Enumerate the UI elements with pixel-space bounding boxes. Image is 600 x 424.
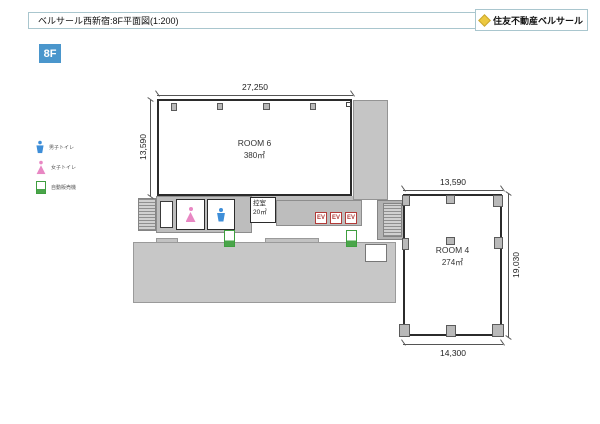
legend-item-male-toilet: 男子トイレ: [36, 140, 116, 154]
toilet-room-male: [207, 199, 235, 230]
elevator-1: EV: [315, 212, 327, 224]
elevator-label: EV: [332, 215, 340, 221]
dim-line: [403, 344, 503, 345]
legend: 男子トイレ 女子トイレ 自動販売機: [36, 140, 116, 200]
male-toilet-icon: [217, 208, 225, 222]
room4-dim-top: 13,590: [403, 177, 503, 187]
pillar: [171, 103, 177, 111]
room4-area: 274㎡: [405, 257, 500, 269]
brand-logo: 住友不動産ベルサール: [475, 9, 588, 31]
waiting-room-area: 20㎡: [253, 208, 275, 217]
pillar: [446, 237, 455, 245]
legend-label: 男子トイレ: [49, 144, 74, 151]
room4-name: ROOM 4: [405, 244, 500, 257]
elevator-label: EV: [317, 215, 325, 221]
dim-line: [157, 95, 353, 96]
dim-line: [150, 100, 151, 196]
wall-fixture: [346, 102, 351, 107]
pillar: [493, 195, 503, 207]
legend-item-vending: 自動販売機: [36, 180, 116, 194]
room6-name: ROOM 6: [159, 137, 350, 150]
stairs-right: [383, 203, 402, 237]
page-title: ベルサール西新宿:8F平面図(1:200): [38, 14, 179, 27]
legend-item-female-toilet: 女子トイレ: [36, 160, 116, 174]
pillar: [263, 103, 270, 110]
diamond-icon: [478, 14, 491, 27]
room6-area: 380㎡: [159, 150, 350, 162]
pillar: [310, 103, 316, 110]
pillar: [402, 238, 409, 250]
dim-line: [403, 190, 503, 191]
female-toilet-icon: [186, 207, 196, 222]
vending-machine-icon: [224, 230, 235, 247]
dim-line: [508, 194, 509, 337]
elevator-label: EV: [347, 215, 355, 221]
lower-area-room: [365, 244, 387, 262]
pillar: [399, 324, 410, 337]
female-toilet-icon: [37, 160, 46, 174]
pillar: [492, 324, 504, 337]
vending-machine-icon: [36, 181, 46, 194]
room4-dim-right: 19,030: [511, 245, 521, 285]
toilet-fixtures: [160, 201, 173, 228]
toilet-room-female: [176, 199, 205, 230]
legend-label: 女子トイレ: [51, 164, 76, 171]
pillar: [446, 325, 456, 337]
brand-name: 住友不動産ベルサール: [493, 14, 583, 27]
pillar: [217, 103, 223, 110]
room4-dim-bottom: 14,300: [403, 348, 503, 358]
lower-roof-area: [133, 242, 396, 303]
male-toilet-icon: [36, 141, 43, 154]
room6: ROOM 6 380㎡: [157, 99, 352, 196]
floor-plan-page: ベルサール西新宿:8F平面図(1:200) 住友不動産ベルサール 8F 男子トイ…: [0, 0, 600, 424]
elevator-3: EV: [345, 212, 357, 224]
room6-dim-height: 13,590: [138, 127, 148, 167]
service-area-right-of-room6: [353, 100, 388, 200]
elevator-2: EV: [330, 212, 342, 224]
waiting-room: 控室 20㎡: [250, 197, 276, 223]
room4: ROOM 4 274㎡: [403, 194, 502, 336]
waiting-room-name: 控室: [253, 199, 275, 208]
room6-dim-width: 27,250: [157, 82, 353, 92]
legend-label: 自動販売機: [51, 184, 76, 191]
pillar: [402, 195, 410, 206]
floor-badge: 8F: [39, 44, 61, 63]
stairs-left: [138, 198, 156, 231]
pillar: [494, 237, 503, 249]
pillar: [446, 195, 455, 204]
vending-machine-icon: [346, 230, 357, 247]
